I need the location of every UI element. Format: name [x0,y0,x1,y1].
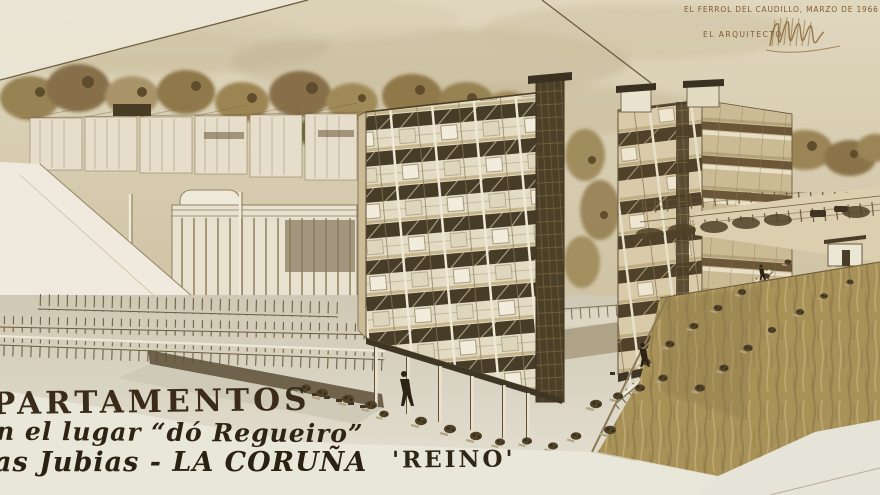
scanned-architectural-rendering: PARTAMENTOS n el lugar “dó Regueiro” as … [0,0,880,495]
small-hut [824,235,866,266]
project-name-reino: 'REINO' [392,445,516,473]
architect-caption: EL ARQUITECTO [703,30,783,39]
gap-promenade [562,302,619,360]
title-line-lugar: n el lugar “dó Regueiro” [0,417,364,449]
title-line-jubias-coruna: as Jubias - LA CORUÑA [0,447,367,478]
location-date-caption: EL FERROL DEL CAUDILLO, MARZO DE 1966 [684,5,879,14]
stair-tower [536,80,564,402]
